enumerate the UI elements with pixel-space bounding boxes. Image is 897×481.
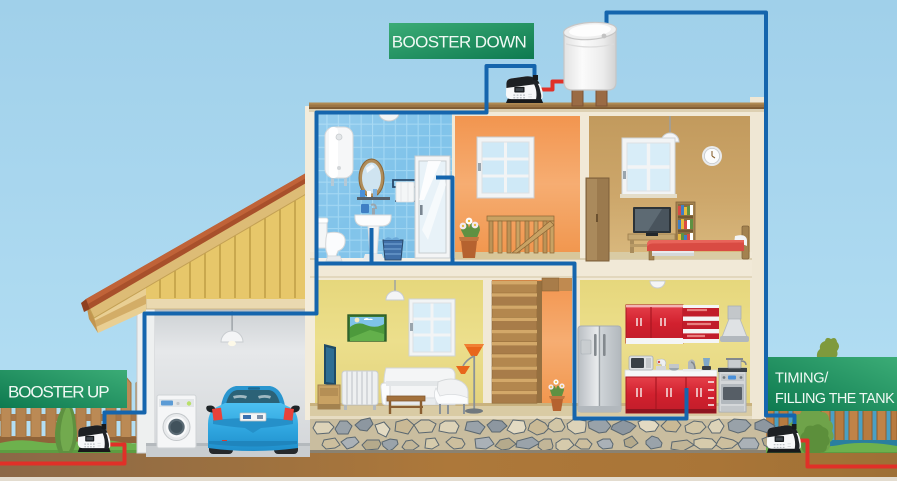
svg-text:BOOSTER UP: BOOSTER UP [8,383,109,402]
svg-text:TIMING/: TIMING/ [775,371,829,387]
svg-text:FILLING THE TANK: FILLING THE TANK [775,391,895,407]
svg-text:BOOSTER DOWN: BOOSTER DOWN [392,33,526,52]
